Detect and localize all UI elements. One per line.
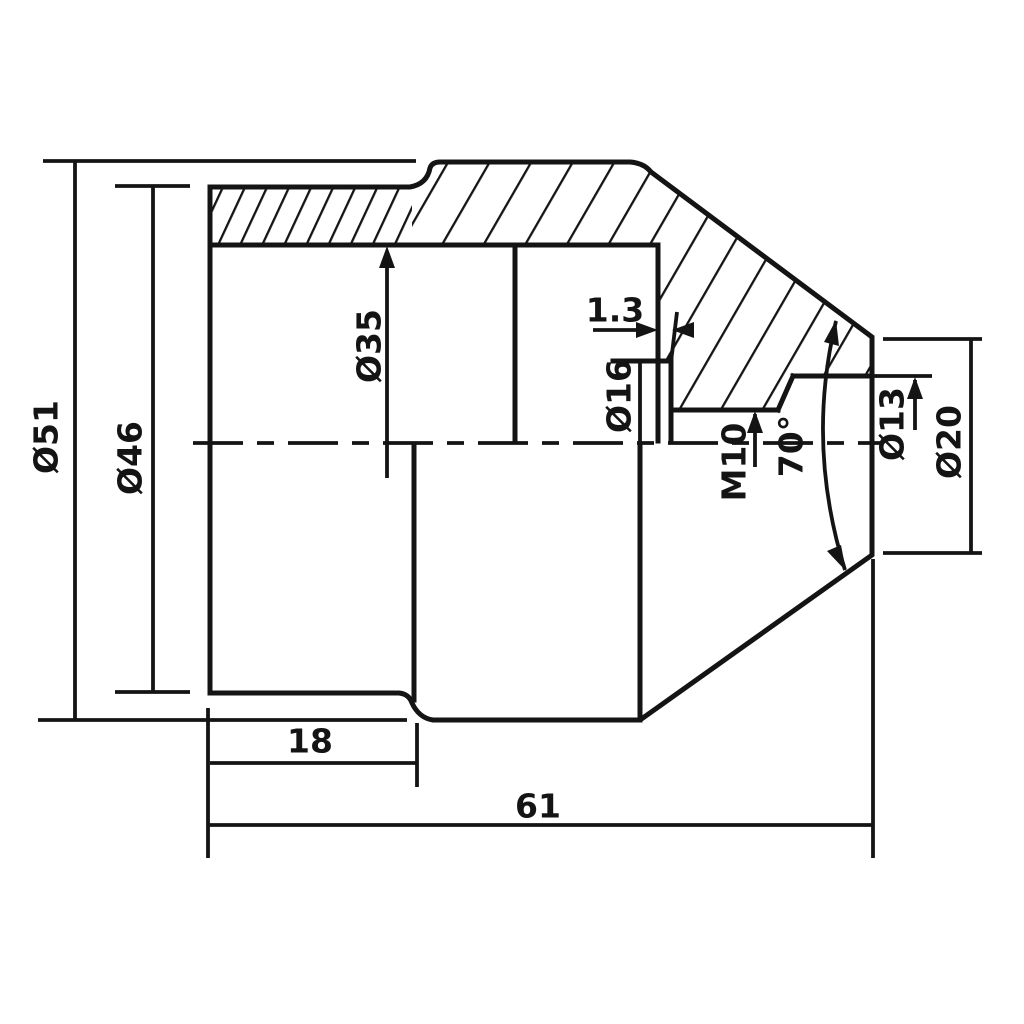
dim-label-dia35: Ø35 xyxy=(350,309,389,383)
dim-label-dia16: Ø16 xyxy=(600,359,639,433)
dim-label-dia20: Ø20 xyxy=(930,405,969,479)
dim-label-groove13: 1.3 xyxy=(586,291,644,330)
dim-label-m10: M10 xyxy=(715,423,754,502)
dim-label-dia13: Ø13 xyxy=(873,387,912,461)
dim-label-len18: 18 xyxy=(287,722,333,761)
dim-label-dia46: Ø46 xyxy=(111,421,150,495)
dim-label-len61: 61 xyxy=(515,787,561,826)
technical-drawing-page: Ø51 Ø46 Ø35 Ø16 M10 70° Ø13 Ø20 1.3 18 6… xyxy=(0,0,1024,1024)
technical-drawing-canvas: Ø51 Ø46 Ø35 Ø16 M10 70° Ø13 Ø20 1.3 18 6… xyxy=(0,0,1024,1024)
hatch-area-left-band xyxy=(210,187,412,245)
dim-label-dia51: Ø51 xyxy=(27,400,66,474)
dim-label-angle70: 70° xyxy=(772,415,811,477)
